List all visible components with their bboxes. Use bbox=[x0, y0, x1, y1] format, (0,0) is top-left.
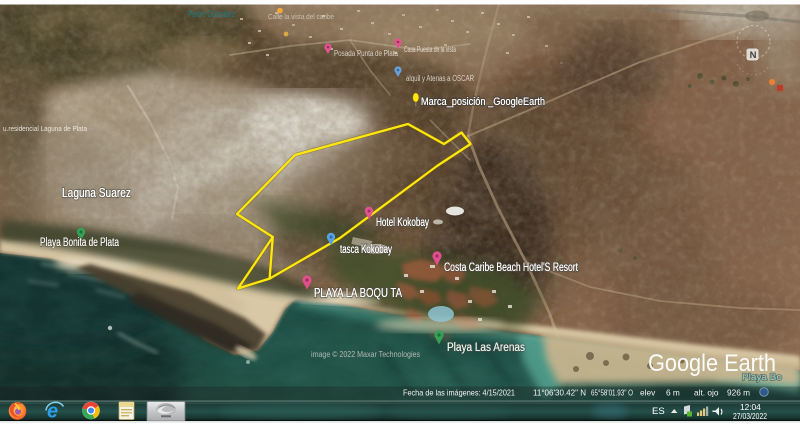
svg-text:Playa Las Arenas: Playa Las Arenas bbox=[447, 342, 525, 354]
svg-text:Laguna Suarez: Laguna Suarez bbox=[62, 186, 131, 200]
svg-text:alt. ojo: alt. ojo bbox=[694, 388, 719, 398]
svg-text:Marca_posición _GoogleEarth: Marca_posición _GoogleEarth bbox=[421, 96, 545, 108]
svg-text:image © 2022 Maxar Technologie: image © 2022 Maxar Technologies bbox=[311, 350, 420, 359]
svg-text:926 m: 926 m bbox=[727, 388, 750, 398]
svg-text:Costa Caribe Beach Hotel'S Res: Costa Caribe Beach Hotel'S Resort bbox=[444, 262, 579, 274]
svg-text:Playa Bonita de Plata: Playa Bonita de Plata bbox=[40, 237, 119, 249]
svg-text:Casa Puesta de la vista: Casa Puesta de la vista bbox=[404, 45, 456, 54]
svg-text:6 m: 6 m bbox=[666, 388, 680, 398]
svg-text:Pedro González: Pedro González bbox=[188, 9, 235, 19]
svg-text:u.residencial Laguna de Plata: u.residencial Laguna de Plata bbox=[3, 124, 88, 133]
svg-text:Posada Punta de Plata: Posada Punta de Plata bbox=[334, 49, 398, 58]
svg-text:65°58'01.93" O: 65°58'01.93" O bbox=[591, 388, 633, 398]
svg-text:PLAYA LA BOQU TA: PLAYA LA BOQU TA bbox=[314, 286, 403, 300]
svg-text:11°06'30.42" N: 11°06'30.42" N bbox=[533, 388, 586, 398]
svg-text:ES: ES bbox=[652, 406, 665, 417]
svg-text:Calle la vista del caribe: Calle la vista del caribe bbox=[268, 12, 334, 21]
svg-text:tasca Kokobay: tasca Kokobay bbox=[340, 244, 392, 256]
svg-text:elev: elev bbox=[640, 388, 656, 398]
svg-text:27/03/2022: 27/03/2022 bbox=[733, 411, 767, 421]
svg-text:Playa Bo: Playa Bo bbox=[742, 372, 782, 382]
svg-text:alquil y Atenas a OSCAR: alquil y Atenas a OSCAR bbox=[406, 74, 474, 83]
svg-text:Hotel Kokobay: Hotel Kokobay bbox=[376, 217, 429, 229]
svg-text:Fecha de las imágenes: 4/15/20: Fecha de las imágenes: 4/15/2021 bbox=[403, 388, 515, 398]
svg-text:N: N bbox=[750, 50, 757, 61]
